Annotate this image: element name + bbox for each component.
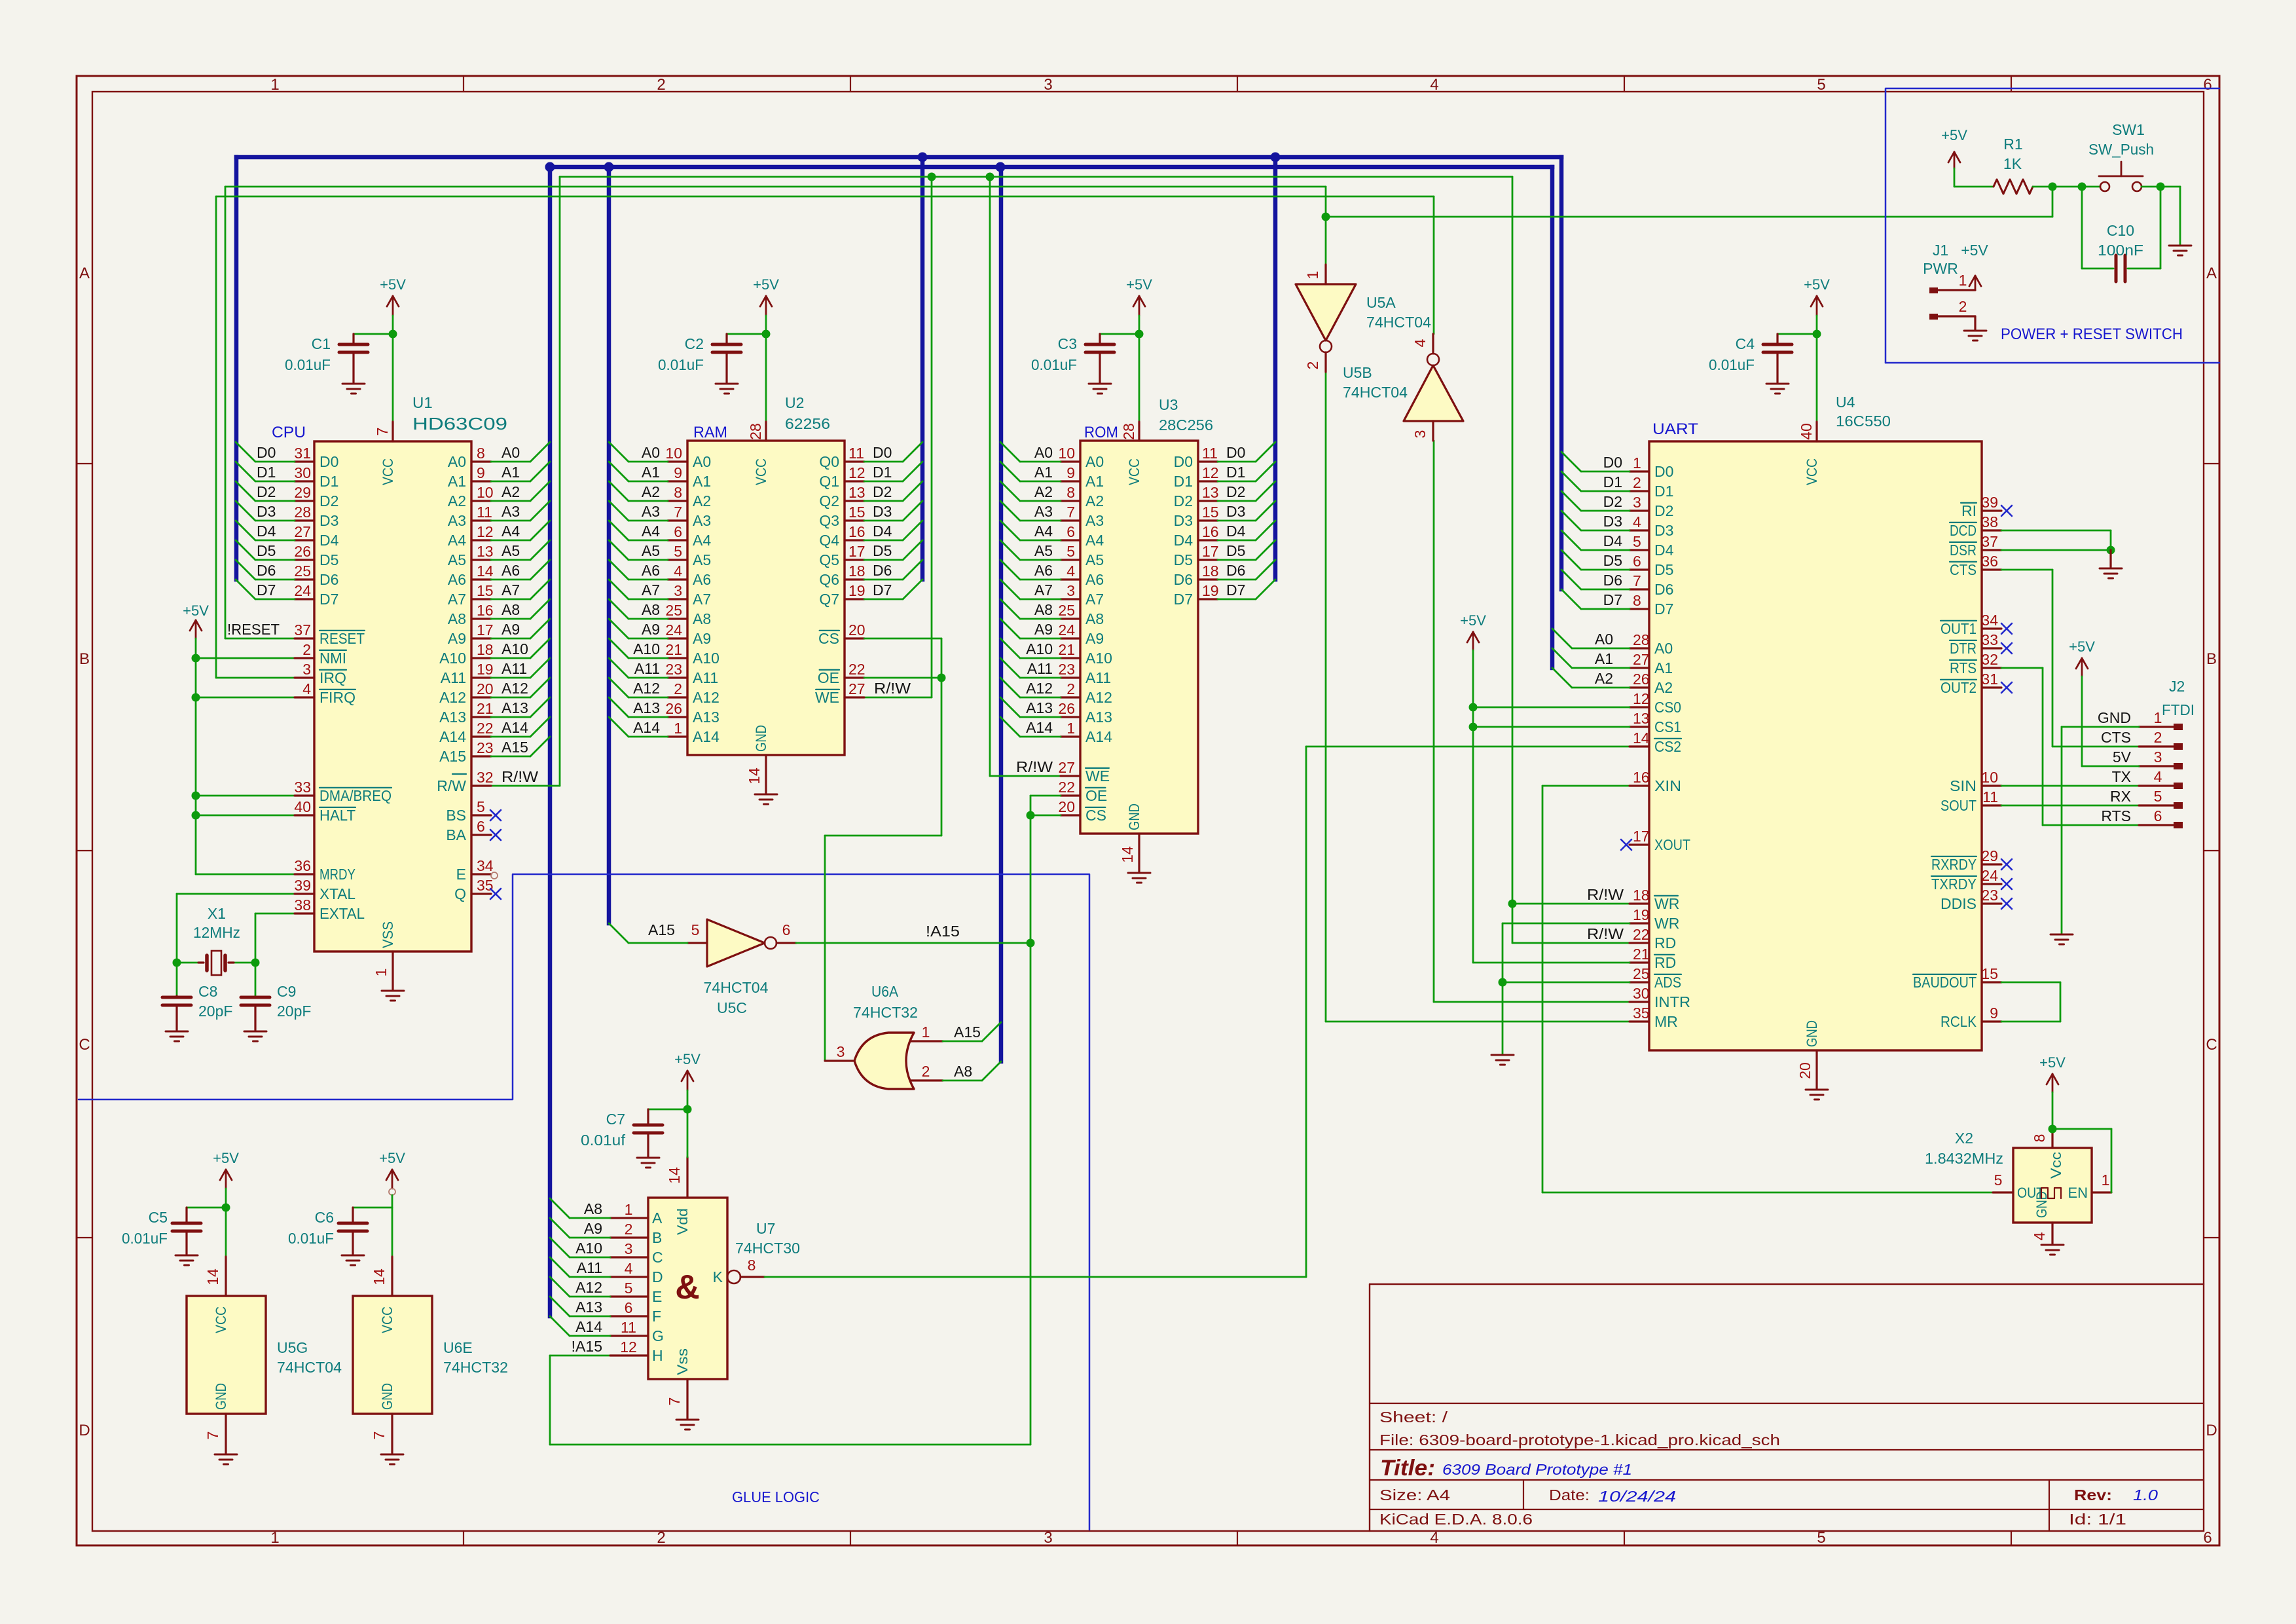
- svg-text:24: 24: [294, 582, 311, 599]
- svg-text:D0: D0: [1603, 454, 1622, 471]
- svg-text:4: 4: [1430, 76, 1438, 94]
- svg-text:A13: A13: [439, 709, 466, 726]
- svg-text:DSR: DSR: [1950, 542, 1977, 559]
- svg-text:3: 3: [1044, 1529, 1052, 1547]
- svg-text:Q2: Q2: [819, 492, 839, 509]
- svg-text:GND: GND: [753, 725, 769, 752]
- svg-text:A1: A1: [1085, 473, 1104, 490]
- svg-text:D1: D1: [1603, 473, 1622, 490]
- svg-text:D1: D1: [1174, 473, 1193, 490]
- svg-text:8: 8: [674, 484, 682, 501]
- svg-text:32: 32: [477, 769, 494, 786]
- svg-text:C1: C1: [312, 335, 331, 352]
- svg-text:A9: A9: [448, 630, 466, 647]
- svg-text:A2: A2: [693, 492, 711, 509]
- svg-text:A11: A11: [693, 669, 718, 686]
- svg-text:Vdd: Vdd: [674, 1208, 691, 1235]
- svg-text:36: 36: [294, 857, 311, 874]
- svg-text:SOUT: SOUT: [1941, 797, 1977, 814]
- svg-text:B: B: [79, 650, 90, 668]
- svg-text:HALT: HALT: [319, 807, 355, 824]
- svg-text:+5V: +5V: [1460, 612, 1486, 629]
- svg-text:13: 13: [1202, 484, 1219, 501]
- svg-text:C5: C5: [149, 1209, 168, 1226]
- svg-text:A2: A2: [448, 492, 466, 509]
- svg-text:5: 5: [1817, 76, 1825, 94]
- svg-text:A7: A7: [642, 581, 660, 599]
- svg-text:A11: A11: [1085, 669, 1111, 686]
- svg-text:D6: D6: [257, 562, 276, 579]
- svg-text:GLUE LOGIC: GLUE LOGIC: [732, 1488, 820, 1505]
- svg-text:A8: A8: [954, 1063, 972, 1080]
- svg-text:7: 7: [674, 504, 682, 521]
- svg-text:35: 35: [477, 877, 494, 894]
- svg-text:38: 38: [1981, 513, 1998, 530]
- svg-text:D2: D2: [1654, 502, 1673, 519]
- svg-text:37: 37: [1981, 533, 1998, 550]
- svg-text:RESET: RESET: [319, 630, 365, 647]
- svg-text:0.01uf: 0.01uf: [581, 1132, 626, 1149]
- svg-text:5: 5: [2154, 788, 2162, 805]
- svg-text:34: 34: [1981, 612, 1998, 629]
- svg-text:17: 17: [1202, 543, 1219, 560]
- svg-text:1: 1: [1633, 454, 1641, 471]
- svg-text:C: C: [79, 1036, 90, 1054]
- svg-text:11: 11: [1982, 788, 1998, 805]
- svg-text:A0: A0: [642, 444, 660, 461]
- svg-text:D3: D3: [1603, 513, 1622, 530]
- svg-text:A7: A7: [1085, 591, 1104, 608]
- svg-text:1: 1: [270, 1529, 279, 1547]
- svg-text:39: 39: [1981, 494, 1998, 511]
- svg-text:32: 32: [1981, 651, 1998, 668]
- svg-text:Date:: Date:: [1549, 1486, 1590, 1504]
- svg-text:A: A: [79, 265, 90, 282]
- svg-text:OUT1: OUT1: [1941, 620, 1977, 637]
- svg-text:11: 11: [621, 1319, 636, 1336]
- svg-text:5: 5: [1066, 543, 1075, 560]
- svg-text:20pF: 20pF: [277, 1003, 311, 1020]
- svg-text:A12: A12: [633, 680, 660, 697]
- svg-text:8: 8: [748, 1257, 756, 1274]
- svg-text:A5: A5: [1034, 542, 1053, 559]
- svg-text:D6: D6: [1603, 572, 1622, 589]
- svg-text:0.01uF: 0.01uF: [1031, 356, 1077, 373]
- svg-text:74HCT04: 74HCT04: [1343, 384, 1408, 401]
- svg-text:14: 14: [666, 1167, 683, 1184]
- svg-text:VCC: VCC: [379, 1306, 395, 1333]
- svg-text:C9: C9: [277, 983, 296, 1000]
- svg-text:35: 35: [1633, 1005, 1650, 1022]
- svg-text:D3: D3: [257, 503, 276, 520]
- svg-text:D5: D5: [257, 542, 276, 559]
- svg-text:A5: A5: [642, 542, 660, 559]
- svg-text:D2: D2: [1174, 492, 1193, 509]
- svg-text:U2: U2: [785, 394, 804, 411]
- svg-text:2: 2: [2154, 729, 2162, 746]
- svg-text:VCC: VCC: [1804, 458, 1820, 485]
- svg-text:A11: A11: [1027, 660, 1053, 677]
- svg-text:BAUDOUT: BAUDOUT: [1913, 974, 1977, 991]
- svg-text:2: 2: [674, 680, 682, 697]
- svg-text:E: E: [652, 1288, 662, 1305]
- svg-text:3: 3: [674, 582, 682, 599]
- svg-text:2: 2: [302, 641, 311, 658]
- svg-text:A10: A10: [501, 640, 528, 657]
- svg-text:D7: D7: [1174, 591, 1193, 608]
- svg-text:A6: A6: [642, 562, 660, 579]
- svg-text:38: 38: [294, 896, 311, 913]
- svg-text:12: 12: [620, 1338, 637, 1356]
- svg-text:C8: C8: [198, 983, 217, 1000]
- svg-text:10: 10: [665, 445, 682, 462]
- svg-text:OE: OE: [818, 669, 839, 686]
- svg-text:25: 25: [665, 602, 682, 619]
- svg-text:U5B: U5B: [1343, 364, 1372, 381]
- svg-text:A8: A8: [448, 610, 466, 627]
- svg-text:24: 24: [1058, 621, 1075, 638]
- svg-text:74HCT32: 74HCT32: [853, 1004, 918, 1021]
- svg-text:33: 33: [1981, 631, 1998, 648]
- svg-text:A4: A4: [501, 523, 520, 540]
- svg-text:40: 40: [1798, 423, 1815, 440]
- svg-text:A0: A0: [1654, 640, 1673, 657]
- svg-text:29: 29: [294, 484, 311, 501]
- svg-text:20pF: 20pF: [198, 1003, 232, 1020]
- svg-text:2: 2: [922, 1063, 930, 1080]
- svg-text:A15: A15: [439, 748, 466, 765]
- svg-text:A6: A6: [448, 571, 466, 588]
- svg-text:WR: WR: [1654, 915, 1679, 932]
- svg-text:62256: 62256: [785, 415, 830, 432]
- svg-text:34: 34: [477, 857, 494, 874]
- svg-text:+5V: +5V: [1941, 127, 1967, 143]
- svg-text:RD: RD: [1654, 934, 1676, 951]
- svg-text:5: 5: [674, 543, 682, 560]
- svg-text:A13: A13: [501, 699, 528, 716]
- svg-text:X2: X2: [1955, 1130, 1973, 1147]
- svg-text:28C256: 28C256: [1159, 416, 1213, 434]
- svg-text:Q7: Q7: [819, 591, 839, 608]
- svg-text:D4: D4: [1654, 542, 1674, 559]
- svg-text:D0: D0: [319, 453, 338, 470]
- svg-text:3: 3: [837, 1043, 845, 1060]
- svg-text:20: 20: [848, 621, 866, 638]
- svg-text:A14: A14: [633, 719, 660, 736]
- svg-text:WE: WE: [1085, 767, 1110, 784]
- svg-text:DDIS: DDIS: [1941, 895, 1977, 912]
- svg-text:D7: D7: [319, 591, 338, 608]
- svg-text:6: 6: [1066, 523, 1075, 540]
- svg-text:R1: R1: [2003, 136, 2022, 153]
- svg-text:A5: A5: [1085, 551, 1104, 568]
- svg-text:MR: MR: [1654, 1013, 1678, 1030]
- svg-text:A6: A6: [1085, 571, 1104, 588]
- svg-text:21: 21: [477, 700, 494, 717]
- svg-text:18: 18: [477, 641, 494, 658]
- svg-text:A10: A10: [575, 1240, 602, 1257]
- svg-text:D4: D4: [1226, 523, 1246, 540]
- svg-text:TXRDY: TXRDY: [1931, 876, 1977, 893]
- svg-text:15: 15: [1202, 504, 1219, 521]
- svg-text:A4: A4: [1085, 532, 1104, 549]
- svg-text:R/W: R/W: [437, 777, 466, 794]
- svg-text:D1: D1: [257, 464, 276, 481]
- svg-text:CS: CS: [818, 630, 839, 647]
- svg-text:8: 8: [2031, 1134, 2048, 1143]
- svg-text:25: 25: [1058, 602, 1075, 619]
- svg-text:D4: D4: [1603, 532, 1623, 549]
- svg-text:Q5: Q5: [819, 551, 839, 568]
- svg-text:+5V: +5V: [1804, 276, 1830, 293]
- svg-text:3: 3: [625, 1240, 633, 1257]
- svg-text:A1: A1: [501, 464, 520, 481]
- svg-text:CPU: CPU: [272, 424, 306, 441]
- svg-text:A3: A3: [642, 503, 660, 520]
- svg-text:3: 3: [1066, 582, 1075, 599]
- svg-text:22: 22: [477, 720, 494, 737]
- svg-text:ROM: ROM: [1084, 424, 1118, 441]
- svg-text:A14: A14: [1026, 719, 1053, 736]
- svg-text:XTAL: XTAL: [319, 885, 355, 902]
- svg-text:A3: A3: [448, 512, 466, 529]
- svg-text:23: 23: [665, 661, 682, 678]
- svg-text:R/!W: R/!W: [501, 768, 538, 785]
- svg-text:F: F: [652, 1308, 661, 1325]
- svg-text:A6: A6: [501, 562, 520, 579]
- svg-text:5: 5: [477, 798, 485, 815]
- svg-text:2: 2: [1959, 298, 1967, 315]
- svg-text:D3: D3: [319, 512, 338, 529]
- svg-text:13: 13: [1633, 710, 1650, 727]
- svg-text:2: 2: [1633, 474, 1641, 491]
- svg-text:4: 4: [2031, 1232, 2048, 1240]
- svg-text:A14: A14: [575, 1318, 602, 1335]
- svg-text:A1: A1: [1034, 464, 1053, 481]
- svg-text:2: 2: [657, 1529, 665, 1547]
- svg-text:14: 14: [1119, 846, 1136, 863]
- svg-text:DTR: DTR: [1950, 640, 1977, 657]
- svg-text:A8: A8: [1034, 601, 1053, 618]
- svg-text:D6: D6: [319, 571, 338, 588]
- svg-text:7: 7: [204, 1431, 221, 1440]
- svg-text:A15: A15: [648, 921, 675, 938]
- svg-text:VSS: VSS: [380, 921, 396, 948]
- svg-text:4: 4: [1066, 563, 1075, 580]
- svg-text:A9: A9: [1034, 621, 1053, 638]
- svg-text:A15: A15: [501, 739, 528, 756]
- svg-text:D6: D6: [873, 562, 892, 579]
- svg-text:MRDY: MRDY: [319, 866, 355, 883]
- svg-text:14: 14: [1633, 729, 1650, 747]
- svg-text:U3: U3: [1159, 396, 1178, 413]
- svg-text:D3: D3: [1174, 512, 1193, 529]
- svg-text:23: 23: [477, 739, 494, 756]
- svg-text:4: 4: [1412, 339, 1429, 347]
- svg-text:R/!W: R/!W: [874, 680, 911, 697]
- svg-text:2: 2: [1066, 680, 1075, 697]
- svg-text:1: 1: [1066, 720, 1075, 737]
- svg-text:C7: C7: [606, 1111, 625, 1128]
- svg-text:1: 1: [625, 1201, 633, 1218]
- svg-text:A13: A13: [575, 1299, 602, 1316]
- svg-text:Q0: Q0: [819, 453, 839, 470]
- svg-text:D5: D5: [873, 542, 892, 559]
- svg-text:A: A: [652, 1209, 663, 1227]
- svg-text:D1: D1: [319, 473, 338, 490]
- svg-text:+5V: +5V: [379, 1150, 405, 1166]
- svg-text:21: 21: [1058, 641, 1075, 658]
- svg-text:WE: WE: [815, 689, 839, 706]
- svg-text:RTS: RTS: [2101, 807, 2131, 824]
- svg-text:D2: D2: [1226, 483, 1245, 500]
- svg-text:Rev:: Rev:: [2074, 1486, 2112, 1504]
- svg-text:14: 14: [746, 767, 763, 784]
- svg-text:GND: GND: [379, 1383, 395, 1410]
- svg-text:A1: A1: [1654, 659, 1673, 676]
- svg-text:9: 9: [1066, 464, 1075, 481]
- svg-text:17: 17: [477, 621, 494, 638]
- svg-text:74HCT30: 74HCT30: [735, 1240, 800, 1257]
- svg-text:12: 12: [1202, 464, 1219, 481]
- svg-text:SW_Push: SW_Push: [2088, 141, 2154, 158]
- svg-text:4: 4: [674, 563, 682, 580]
- svg-text:6: 6: [782, 921, 791, 938]
- svg-text:A12: A12: [501, 680, 528, 697]
- svg-text:A2: A2: [1085, 492, 1104, 509]
- svg-text:24: 24: [1981, 867, 1998, 884]
- svg-text:A12: A12: [1085, 689, 1112, 706]
- svg-text:2: 2: [625, 1221, 633, 1238]
- svg-text:C3: C3: [1058, 335, 1077, 352]
- svg-text:A12: A12: [693, 689, 720, 706]
- svg-text:D6: D6: [1654, 581, 1673, 598]
- svg-text:8: 8: [1066, 484, 1075, 501]
- svg-text:D7: D7: [873, 581, 892, 599]
- svg-text:0.01uF: 0.01uF: [288, 1230, 334, 1247]
- svg-text:A9: A9: [1085, 630, 1104, 647]
- svg-text:A6: A6: [693, 571, 711, 588]
- svg-text:UART: UART: [1652, 420, 1698, 438]
- svg-text:+5V: +5V: [2039, 1054, 2066, 1071]
- svg-text:100nF: 100nF: [2098, 242, 2143, 259]
- svg-text:74HCT04: 74HCT04: [1366, 314, 1431, 331]
- svg-text:6: 6: [477, 818, 485, 835]
- svg-text:ADS: ADS: [1654, 974, 1681, 991]
- svg-text:Sheet: /: Sheet: /: [1379, 1409, 1448, 1426]
- svg-text:RAM: RAM: [693, 424, 727, 441]
- svg-text:KiCad E.D.A. 8.0.6: KiCad E.D.A. 8.0.6: [1379, 1511, 1533, 1528]
- svg-text:+5V: +5V: [213, 1150, 239, 1166]
- svg-text:A11: A11: [634, 660, 660, 677]
- svg-text:11: 11: [848, 445, 864, 462]
- svg-text:20: 20: [1796, 1062, 1813, 1079]
- svg-text:IRQ: IRQ: [319, 669, 346, 686]
- svg-text:37: 37: [294, 621, 311, 638]
- svg-text:OE: OE: [1085, 787, 1107, 804]
- svg-text:D6: D6: [1174, 571, 1193, 588]
- svg-text:C10: C10: [2107, 222, 2134, 239]
- svg-text:U5C: U5C: [717, 999, 747, 1016]
- svg-text:B: B: [652, 1229, 662, 1246]
- svg-text:A2: A2: [1654, 679, 1673, 696]
- svg-text:23: 23: [1981, 887, 1998, 904]
- svg-text:D6: D6: [1226, 562, 1245, 579]
- svg-text:4: 4: [625, 1260, 633, 1277]
- svg-text:27: 27: [1633, 651, 1650, 668]
- svg-text:A7: A7: [501, 581, 520, 599]
- svg-text:D3: D3: [1226, 503, 1245, 520]
- svg-text:A1: A1: [693, 473, 711, 490]
- svg-text:!A15: !A15: [572, 1338, 602, 1355]
- svg-text:A13: A13: [1026, 699, 1053, 716]
- svg-text:G: G: [652, 1327, 664, 1344]
- svg-text:WR: WR: [1654, 895, 1679, 912]
- svg-text:4: 4: [1633, 513, 1641, 530]
- svg-text:A8: A8: [584, 1200, 602, 1217]
- svg-text:J1: J1: [1933, 242, 1948, 259]
- svg-text:C: C: [652, 1249, 663, 1266]
- svg-text:2: 2: [657, 76, 665, 94]
- svg-text:22: 22: [1633, 926, 1650, 943]
- svg-text:1: 1: [373, 969, 390, 977]
- svg-text:8: 8: [477, 445, 485, 462]
- svg-text:D5: D5: [319, 551, 338, 568]
- svg-text:5: 5: [691, 921, 700, 938]
- svg-text:INTR: INTR: [1654, 993, 1690, 1010]
- svg-text:7: 7: [371, 1431, 388, 1440]
- svg-text:D1: D1: [1226, 464, 1245, 481]
- svg-text:+5V: +5V: [183, 602, 209, 619]
- svg-text:C6: C6: [315, 1209, 334, 1226]
- svg-text:EXTAL: EXTAL: [319, 905, 365, 922]
- svg-text:6: 6: [1633, 553, 1641, 570]
- svg-text:A7: A7: [693, 591, 711, 608]
- svg-text:A1: A1: [448, 473, 466, 490]
- svg-text:RI: RI: [1961, 502, 1977, 519]
- svg-text:A12: A12: [1026, 680, 1053, 697]
- svg-text:3: 3: [1044, 76, 1052, 94]
- svg-text:3: 3: [2154, 748, 2162, 766]
- svg-text:SW1: SW1: [2112, 121, 2145, 138]
- svg-text:A12: A12: [439, 689, 466, 706]
- svg-text:0.01uF: 0.01uF: [658, 356, 704, 373]
- svg-text:19: 19: [1202, 582, 1219, 599]
- svg-text:17: 17: [1633, 828, 1650, 845]
- svg-text:A5: A5: [448, 551, 466, 568]
- svg-text:A14: A14: [1085, 728, 1112, 745]
- svg-text:1: 1: [922, 1024, 930, 1041]
- svg-text:5: 5: [1994, 1172, 2003, 1189]
- svg-text:21: 21: [665, 641, 682, 658]
- svg-text:A3: A3: [1085, 512, 1104, 529]
- svg-text:A10: A10: [633, 640, 660, 657]
- svg-text:5: 5: [1817, 1529, 1825, 1547]
- svg-text:!A15: !A15: [926, 923, 960, 940]
- svg-text:D7: D7: [1226, 581, 1245, 599]
- svg-text:15: 15: [848, 504, 866, 521]
- svg-text:A2: A2: [642, 483, 660, 500]
- svg-text:A0: A0: [448, 453, 466, 470]
- svg-text:D1: D1: [873, 464, 892, 481]
- svg-text:CS: CS: [1085, 807, 1106, 824]
- svg-text:31: 31: [294, 445, 311, 462]
- svg-text:8: 8: [1633, 592, 1641, 609]
- svg-text:12: 12: [848, 464, 866, 481]
- svg-text:A15: A15: [954, 1024, 981, 1041]
- svg-text:A8: A8: [1085, 610, 1104, 627]
- svg-text:4: 4: [2154, 768, 2162, 785]
